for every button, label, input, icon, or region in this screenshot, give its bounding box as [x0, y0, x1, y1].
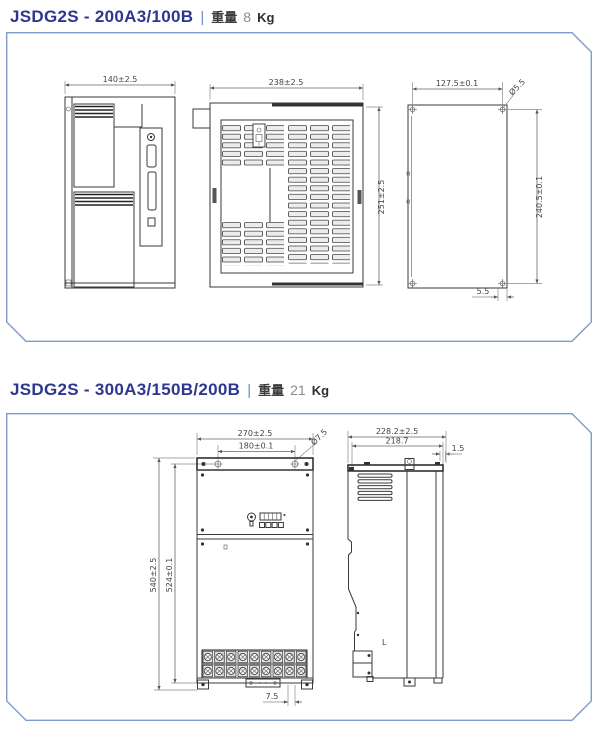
- dim-side-depth: 228.2±2.5: [376, 427, 418, 436]
- dim-front-width: 238±2.5: [269, 78, 304, 87]
- weight-label: 重量: [211, 7, 237, 26]
- weight-number: 21: [290, 382, 306, 398]
- model-number: JSDG2S - 200A3/100B: [10, 7, 193, 27]
- model-number: JSDG2S - 300A3/150B/200B: [10, 380, 240, 400]
- side-marking-label: L: [382, 638, 387, 647]
- section2-title: JSDG2S - 300A3/150B/200B | 重量 21 Kg: [10, 380, 329, 400]
- dim-front-width: 270±2.5: [238, 429, 273, 438]
- dim-front-height: 251±2.5: [377, 180, 386, 215]
- section1-title: JSDG2S - 200A3/100B | 重量 8 Kg: [10, 7, 274, 27]
- drawing-panel-2: 270±2.5 180±0.1 Ø7.5 540±2.5 524±0.1: [6, 413, 592, 721]
- title-separator: |: [246, 382, 252, 399]
- terminal-block: [202, 650, 307, 678]
- dim-side-width: 140±2.5: [103, 75, 138, 84]
- dim-front-hole-pitch-h: 524±0.1: [165, 558, 174, 593]
- dim-front-hole-offset: 7.5: [266, 692, 279, 701]
- dim-back-hole-pitch-w: 127.5±0.1: [436, 79, 478, 88]
- weight-unit: Kg: [312, 383, 329, 398]
- weight-unit: Kg: [257, 10, 274, 25]
- dim-back-hole-offset: 5.5: [477, 287, 490, 296]
- dim-side-inner-depth: 218.7: [386, 437, 409, 446]
- dim-front-height: 540±2.5: [149, 558, 158, 593]
- dim-back-hole-pitch-h: 240.5±0.1: [535, 176, 544, 218]
- weight-label: 重量: [258, 380, 284, 399]
- dim-side-lip: 1.5: [452, 444, 465, 453]
- dim-front-hole-pitch-w: 180±0.1: [239, 442, 274, 451]
- drawing-panel-1: 140±2.5 238±2.5 251±2.5: [6, 32, 592, 342]
- weight-number: 8: [243, 9, 251, 25]
- title-separator: |: [199, 9, 205, 26]
